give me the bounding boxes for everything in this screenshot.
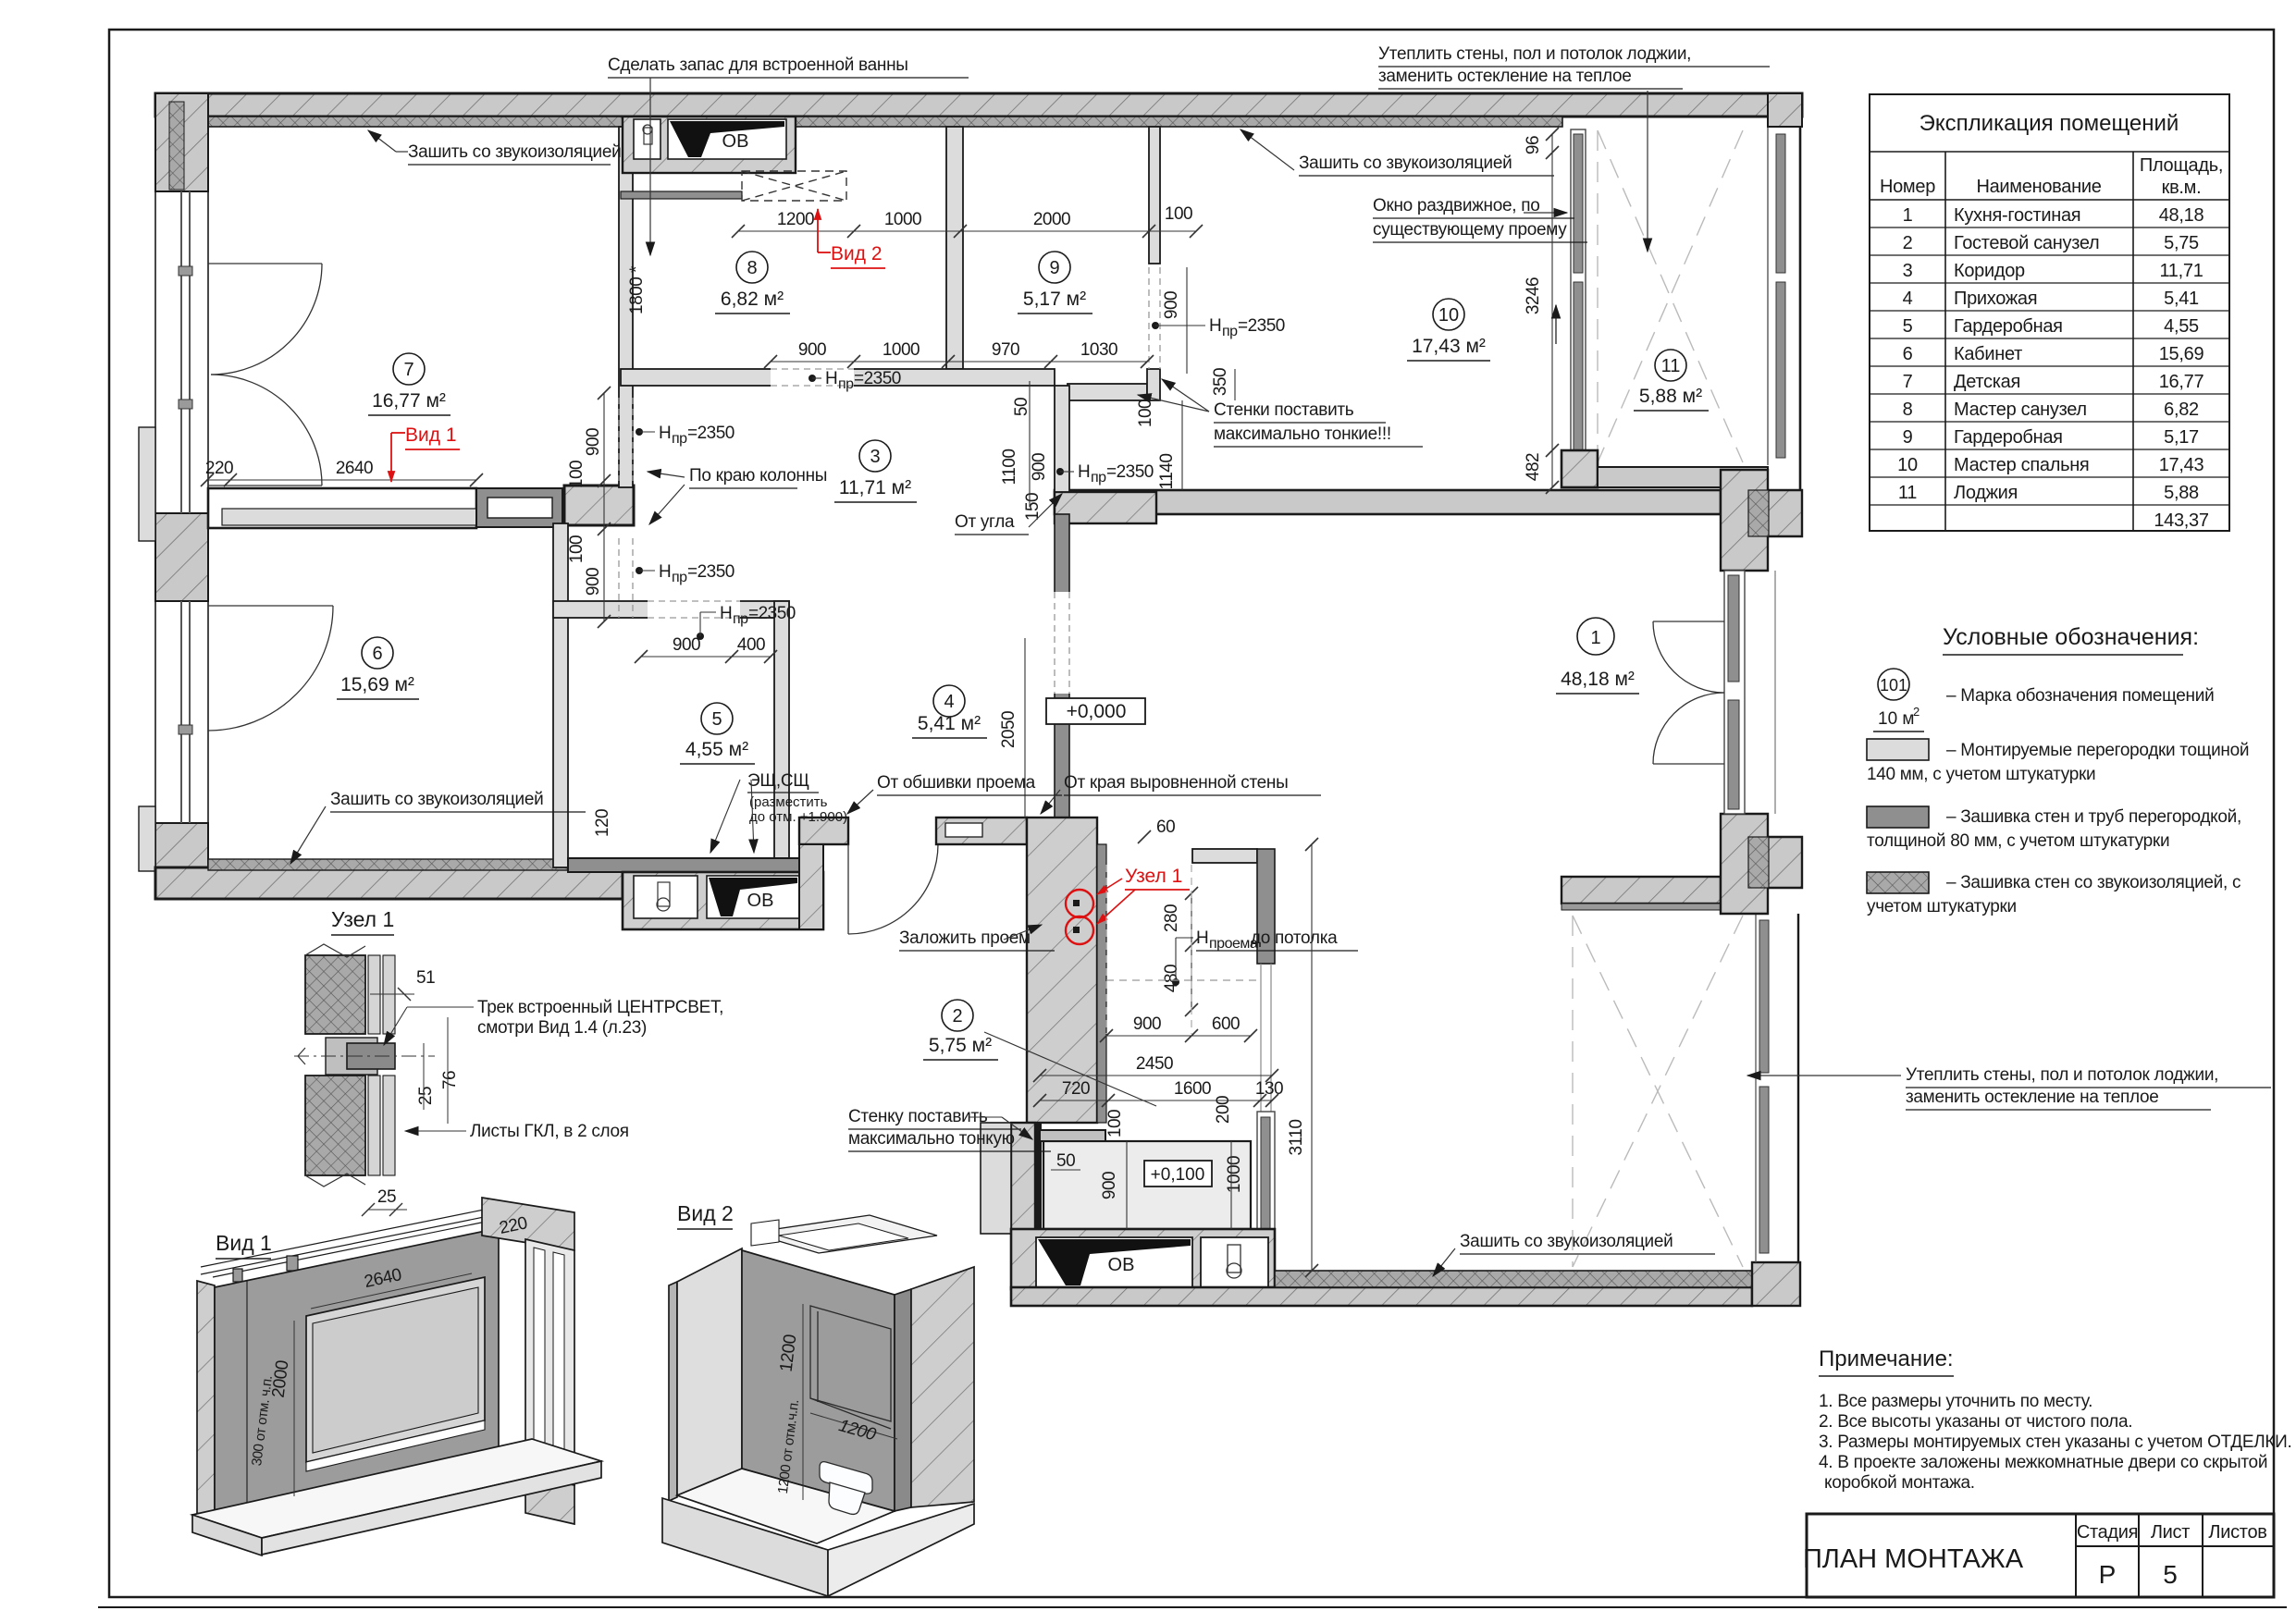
svg-text:Зашить со звукоизоляцией: Зашить со звукоизоляцией xyxy=(408,142,621,162)
svg-text:60: 60 xyxy=(1156,818,1175,837)
svg-text:5: 5 xyxy=(711,709,722,730)
svg-text:1140: 1140 xyxy=(1157,454,1177,490)
svg-text:заменить остекление на теплое: заменить остекление на теплое xyxy=(1378,67,1632,86)
svg-text:пр: пр xyxy=(1091,470,1106,486)
svg-text:Н: Н xyxy=(659,562,671,582)
svg-text:50: 50 xyxy=(1012,398,1031,416)
svg-text:+0,100: +0,100 xyxy=(1151,1165,1205,1185)
svg-text:6,82: 6,82 xyxy=(2164,400,2199,420)
svg-text:5,41 м²: 5,41 м² xyxy=(918,713,981,734)
svg-text:Экспликация помещений: Экспликация помещений xyxy=(1920,111,2179,136)
svg-text:Наименование: Наименование xyxy=(1976,177,2101,197)
svg-text:1: 1 xyxy=(1903,205,1913,226)
svg-text:+0,000: +0,000 xyxy=(1067,701,1127,722)
svg-text:4,55 м²: 4,55 м² xyxy=(685,739,748,760)
svg-text:2640: 2640 xyxy=(336,459,373,478)
svg-text:Площадь,: Площадь, xyxy=(2140,155,2223,176)
svg-text:1. Все размеры уточнить по мес: 1. Все размеры уточнить по месту. xyxy=(1819,1392,2092,1411)
svg-text:Утеплить стены, пол и потолок: Утеплить стены, пол и потолок лоджии, xyxy=(1906,1065,2218,1085)
svg-text:=2350: =2350 xyxy=(1106,462,1154,482)
svg-text:до отм. +1.900): до отм. +1.900) xyxy=(749,809,847,825)
svg-text:Н: Н xyxy=(720,604,732,623)
svg-text:970: 970 xyxy=(992,340,1019,360)
svg-text:ОВ: ОВ xyxy=(747,891,774,911)
svg-text:Узел 1: Узел 1 xyxy=(1125,866,1182,887)
svg-text:Н: Н xyxy=(1078,462,1090,482)
svg-text:720: 720 xyxy=(1062,1079,1090,1099)
svg-text:Утеплить стены, пол и потолок: Утеплить стены, пол и потолок лоджии, xyxy=(1378,44,1691,64)
svg-text:Листы ГКЛ, в 2 слоя: Листы ГКЛ, в 2 слоя xyxy=(470,1122,629,1141)
svg-text:Заложить проем: Заложить проем xyxy=(899,928,1031,948)
svg-text:900: 900 xyxy=(1030,453,1049,481)
svg-text:Трек встроенный ЦЕНТРСВЕТ,: Трек встроенный ЦЕНТРСВЕТ, xyxy=(477,998,723,1017)
svg-text:48,18 м²: 48,18 м² xyxy=(1561,669,1635,690)
svg-text:По краю колонны: По краю колонны xyxy=(689,466,827,486)
svg-text:11,71 м²: 11,71 м² xyxy=(839,477,911,498)
svg-text:8: 8 xyxy=(1903,400,1913,420)
svg-text:Вид 1: Вид 1 xyxy=(216,1231,272,1255)
svg-text:1: 1 xyxy=(1590,628,1600,648)
svg-text:Сделать запас для встроенной в: Сделать запас для встроенной ванны xyxy=(608,55,908,75)
svg-text:900: 900 xyxy=(584,428,603,456)
svg-text:2450: 2450 xyxy=(1136,1054,1173,1074)
svg-text:Прихожая: Прихожая xyxy=(1954,289,2037,309)
svg-text:1100: 1100 xyxy=(1000,449,1019,486)
svg-text:Номер: Номер xyxy=(1880,177,1935,197)
svg-text:От угла: От угла xyxy=(955,512,1015,532)
svg-text:– Марка обозначения помещений: – Марка обозначения помещений xyxy=(1946,686,2214,706)
svg-text:5,41: 5,41 xyxy=(2164,289,2199,309)
svg-text:Зашить со звукоизоляцией: Зашить со звукоизоляцией xyxy=(1460,1232,1673,1251)
svg-text:5: 5 xyxy=(1903,316,1913,337)
svg-text:480: 480 xyxy=(1162,965,1181,992)
svg-text:Вид 1: Вид 1 xyxy=(405,424,457,446)
svg-text:140 мм, с учетом штукатурки: 140 мм, с учетом штукатурки xyxy=(1867,765,2095,784)
svg-text:кв.м.: кв.м. xyxy=(2162,178,2202,198)
svg-text:1000: 1000 xyxy=(1225,1156,1244,1193)
svg-text:2050: 2050 xyxy=(999,711,1018,748)
svg-text:Вид 2: Вид 2 xyxy=(677,1201,734,1225)
svg-text:51: 51 xyxy=(416,968,435,988)
svg-text:15,69: 15,69 xyxy=(2159,344,2204,364)
svg-text:900: 900 xyxy=(584,568,603,596)
svg-text:120: 120 xyxy=(593,809,612,837)
svg-text:Вид 2: Вид 2 xyxy=(831,243,883,264)
svg-text:– Зашивка стен и труб перегоро: – Зашивка стен и труб перегородкой, xyxy=(1946,807,2241,827)
svg-text:16,77: 16,77 xyxy=(2159,372,2204,392)
svg-text:пр: пр xyxy=(672,570,687,585)
svg-text:280: 280 xyxy=(1162,904,1181,932)
svg-text:заменить остекление на теплое: заменить остекление на теплое xyxy=(1906,1088,2159,1107)
svg-text:482: 482 xyxy=(1524,453,1543,481)
svg-text:толщиной 80 мм, с учетом штука: толщиной 80 мм, с учетом штукатурки xyxy=(1867,831,2169,851)
svg-text:4: 4 xyxy=(944,692,954,712)
svg-text:100: 100 xyxy=(1136,400,1155,427)
svg-text:3: 3 xyxy=(870,447,880,467)
svg-text:25: 25 xyxy=(377,1187,396,1207)
svg-text:Стенки поставить: Стенки поставить xyxy=(1214,400,1354,420)
svg-text:пр: пр xyxy=(838,376,854,392)
svg-text:пр: пр xyxy=(1222,324,1238,339)
svg-text:1030: 1030 xyxy=(1080,340,1117,360)
svg-text:100: 100 xyxy=(1105,1110,1125,1137)
svg-text:48,18: 48,18 xyxy=(2159,205,2204,226)
svg-text:Н: Н xyxy=(659,424,671,443)
svg-text:100: 100 xyxy=(567,461,586,488)
svg-text:100: 100 xyxy=(567,535,586,563)
svg-text:Н: Н xyxy=(1209,316,1221,336)
svg-text:Стенку поставить: Стенку поставить xyxy=(848,1107,988,1126)
svg-text:Стадия: Стадия xyxy=(2077,1522,2138,1543)
svg-text:1200: 1200 xyxy=(777,210,814,229)
svg-text:Р: Р xyxy=(2099,1560,2117,1589)
svg-text:=2350: =2350 xyxy=(854,369,901,388)
svg-text:Н: Н xyxy=(825,369,837,388)
svg-text:3. Размеры монтируемых стен ук: 3. Размеры монтируемых стен указаны с уч… xyxy=(1819,1432,2292,1452)
svg-text:4,55: 4,55 xyxy=(2164,316,2199,337)
svg-text:смотри Вид 1.4 (л.23): смотри Вид 1.4 (л.23) xyxy=(477,1018,647,1038)
svg-text:От обшивки проема: От обшивки проема xyxy=(877,773,1036,793)
svg-text:Примечание:: Примечание: xyxy=(1819,1346,1954,1371)
svg-text:коробкой монтажа.: коробкой монтажа. xyxy=(1824,1473,1975,1493)
svg-text:10: 10 xyxy=(1897,455,1918,475)
svg-text:5,75 м²: 5,75 м² xyxy=(929,1035,992,1056)
svg-text:15,69 м²: 15,69 м² xyxy=(340,674,414,695)
svg-text:5,88: 5,88 xyxy=(2164,483,2199,503)
svg-text:максимально тонкую: максимально тонкую xyxy=(848,1129,1015,1149)
svg-text:1800 *: 1800 * xyxy=(627,265,647,314)
svg-text:3246: 3246 xyxy=(1524,277,1543,314)
svg-text:5: 5 xyxy=(2163,1560,2178,1589)
svg-text:=2350: =2350 xyxy=(748,604,796,623)
svg-text:11,71: 11,71 xyxy=(2159,261,2203,281)
svg-text:900: 900 xyxy=(1100,1172,1119,1199)
svg-text:6: 6 xyxy=(372,644,382,664)
svg-text:143,37: 143,37 xyxy=(2154,510,2209,531)
svg-text:2000: 2000 xyxy=(1033,210,1070,229)
svg-text:76: 76 xyxy=(440,1071,460,1089)
svg-text:7: 7 xyxy=(403,360,414,380)
svg-text:=2350: =2350 xyxy=(687,562,734,582)
svg-text:5,75: 5,75 xyxy=(2164,233,2199,253)
svg-text:Мастер спальня: Мастер спальня xyxy=(1954,455,2089,475)
svg-text:Детская: Детская xyxy=(1954,372,2020,392)
svg-text:существующему проему: существующему проему xyxy=(1373,220,1567,240)
svg-text:Зашить со звукоизоляцией: Зашить со звукоизоляцией xyxy=(1299,154,1512,173)
svg-text:до потолка: до потолка xyxy=(1251,928,1338,948)
svg-text:900: 900 xyxy=(1133,1014,1161,1034)
svg-text:9: 9 xyxy=(1049,258,1059,278)
svg-text:2: 2 xyxy=(952,1006,962,1027)
svg-text:200: 200 xyxy=(1214,1096,1233,1124)
svg-text:16,77 м²: 16,77 м² xyxy=(372,390,446,412)
svg-text:Лоджия: Лоджия xyxy=(1954,483,2018,503)
svg-text:1000: 1000 xyxy=(884,210,921,229)
svg-text:5,88 м²: 5,88 м² xyxy=(1639,386,1702,407)
svg-text:9: 9 xyxy=(1903,427,1913,448)
svg-text:Н: Н xyxy=(1196,928,1208,948)
svg-text:=2350: =2350 xyxy=(687,424,734,443)
svg-text:Гардеробная: Гардеробная xyxy=(1954,316,2063,337)
svg-text:11: 11 xyxy=(1661,356,1681,376)
svg-text:17,43 м²: 17,43 м² xyxy=(1412,336,1486,357)
svg-text:600: 600 xyxy=(1212,1014,1240,1034)
svg-text:Зашить со звукоизоляцией: Зашить со звукоизоляцией xyxy=(330,790,543,809)
svg-text:ОВ: ОВ xyxy=(722,131,749,152)
svg-text:=2350: =2350 xyxy=(1238,316,1285,336)
svg-text:учетом штукатурки: учетом штукатурки xyxy=(1867,897,2017,916)
svg-text:10 м: 10 м xyxy=(1878,709,1914,729)
svg-text:Гардеробная: Гардеробная xyxy=(1954,427,2063,448)
svg-text:50: 50 xyxy=(1056,1151,1075,1171)
svg-text:Коридор: Коридор xyxy=(1954,261,2025,281)
svg-text:Лист: Лист xyxy=(2151,1522,2190,1543)
svg-text:130: 130 xyxy=(1255,1079,1283,1099)
svg-text:900: 900 xyxy=(673,635,700,655)
svg-text:8: 8 xyxy=(747,258,757,278)
svg-text:100: 100 xyxy=(1165,204,1192,224)
svg-text:3110: 3110 xyxy=(1287,1120,1306,1156)
svg-text:101: 101 xyxy=(1880,676,1907,695)
svg-text:900: 900 xyxy=(1162,291,1181,319)
svg-text:Кабинет: Кабинет xyxy=(1954,344,2022,364)
svg-text:11: 11 xyxy=(1898,483,1917,503)
svg-text:2: 2 xyxy=(1913,705,1920,719)
svg-text:6: 6 xyxy=(1903,344,1913,364)
svg-text:220: 220 xyxy=(205,459,233,478)
svg-text:4: 4 xyxy=(1903,289,1913,309)
svg-text:Кухня-гостиная: Кухня-гостиная xyxy=(1954,205,2080,226)
svg-text:1600: 1600 xyxy=(1174,1079,1211,1099)
svg-text:ПЛАН МОНТАЖА: ПЛАН МОНТАЖА xyxy=(1803,1544,2024,1574)
svg-text:максимально тонкие!!!: максимально тонкие!!! xyxy=(1214,424,1391,444)
svg-text:Листов: Листов xyxy=(2208,1522,2266,1543)
svg-text:Условные обозначения:: Условные обозначения: xyxy=(1943,624,2199,650)
svg-text:Узел 1: Узел 1 xyxy=(331,907,394,931)
svg-text:400: 400 xyxy=(737,635,765,655)
svg-text:пр: пр xyxy=(733,611,748,627)
svg-text:– Зашивка стен со звукоизоляци: – Зашивка стен со звукоизоляцией, с xyxy=(1946,873,2240,892)
svg-text:От края выровненной стены: От края выровненной стены xyxy=(1064,773,1288,793)
svg-text:350: 350 xyxy=(1211,368,1230,396)
svg-text:2. Все высоты указаны от чисто: 2. Все высоты указаны от чистого пола. xyxy=(1819,1412,2132,1432)
svg-text:– Монтируемые перегородки тощи: – Монтируемые перегородки тощиной xyxy=(1946,741,2249,760)
svg-text:5,17 м²: 5,17 м² xyxy=(1023,289,1086,310)
svg-text:10: 10 xyxy=(1438,305,1459,326)
svg-text:пр: пр xyxy=(672,431,687,447)
svg-text:1000: 1000 xyxy=(883,340,920,360)
svg-text:ЭЩ,СЩ: ЭЩ,СЩ xyxy=(747,771,809,791)
svg-text:ОВ: ОВ xyxy=(1108,1255,1135,1275)
svg-text:6,82 м²: 6,82 м² xyxy=(721,289,784,310)
svg-text:3: 3 xyxy=(1903,261,1913,281)
svg-text:(разместить: (разместить xyxy=(749,794,828,810)
svg-text:Мастер санузел: Мастер санузел xyxy=(1954,400,2087,420)
svg-text:4. В проекте заложены межкомна: 4. В проекте заложены межкомнатные двери… xyxy=(1819,1453,2267,1472)
svg-text:900: 900 xyxy=(798,340,826,360)
svg-text:25: 25 xyxy=(416,1087,436,1105)
svg-text:5,17: 5,17 xyxy=(2164,427,2199,448)
svg-text:7: 7 xyxy=(1903,372,1913,392)
svg-text:Окно раздвижное, по: Окно раздвижное, по xyxy=(1373,196,1540,215)
svg-text:96: 96 xyxy=(1524,136,1543,154)
svg-text:Гостевой санузел: Гостевой санузел xyxy=(1954,233,2099,253)
svg-text:2: 2 xyxy=(1903,233,1913,253)
svg-text:17,43: 17,43 xyxy=(2159,455,2204,475)
